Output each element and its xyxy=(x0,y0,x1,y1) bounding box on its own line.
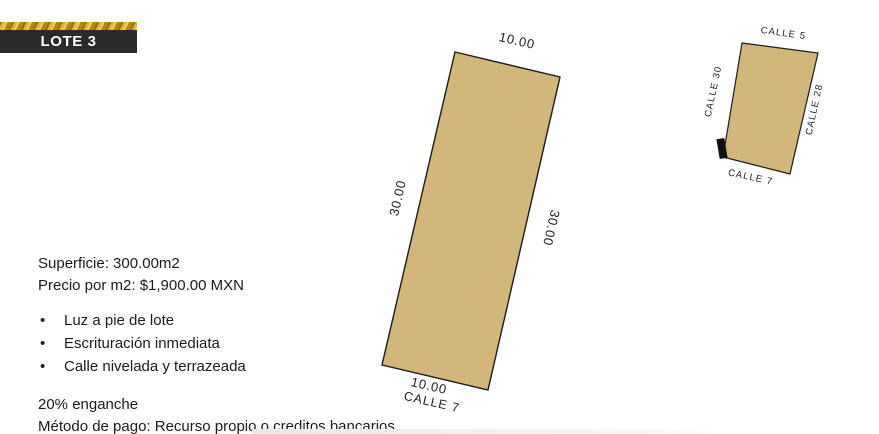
lot-details: Superficie: 300.00m2 Precio por m2: $1,9… xyxy=(38,253,438,434)
mini-map-street-bottom: CALLE 7 xyxy=(727,167,774,187)
feature-text: Luz a pie de lote xyxy=(64,309,174,332)
list-item: • Luz a pie de lote xyxy=(38,309,438,332)
lot-top-dimension: 10.00 xyxy=(498,29,537,52)
slide-canvas: LOTE 3 10.00 30.00 30.00 10.00 CALLE 7 C… xyxy=(0,0,879,434)
bullet-icon: • xyxy=(38,332,64,355)
list-item: • Escrituración inmediata xyxy=(38,332,438,355)
block-polygon xyxy=(723,43,818,174)
feature-text: Escrituración inmediata xyxy=(64,332,220,355)
lot-left-dimension: 30.00 xyxy=(386,178,409,217)
list-item: • Calle nivelada y terrazeada xyxy=(38,355,438,378)
feature-list: • Luz a pie de lote • Escrituración inme… xyxy=(38,309,438,378)
precio-text: Precio por m2: $1,900.00 MXN xyxy=(38,275,438,296)
bullet-icon: • xyxy=(38,355,64,378)
mini-map-street-top: CALLE 5 xyxy=(760,25,807,42)
feature-text: Calle nivelada y terrazeada xyxy=(64,355,246,378)
bottom-edge-strip xyxy=(252,429,714,434)
mini-map-street-left: CALLE 30 xyxy=(703,65,725,118)
bullet-icon: • xyxy=(38,309,64,332)
lot-right-dimension: 30.00 xyxy=(540,209,563,248)
enganche-text: 20% enganche xyxy=(38,394,438,415)
superficie-text: Superficie: 300.00m2 xyxy=(38,253,438,274)
